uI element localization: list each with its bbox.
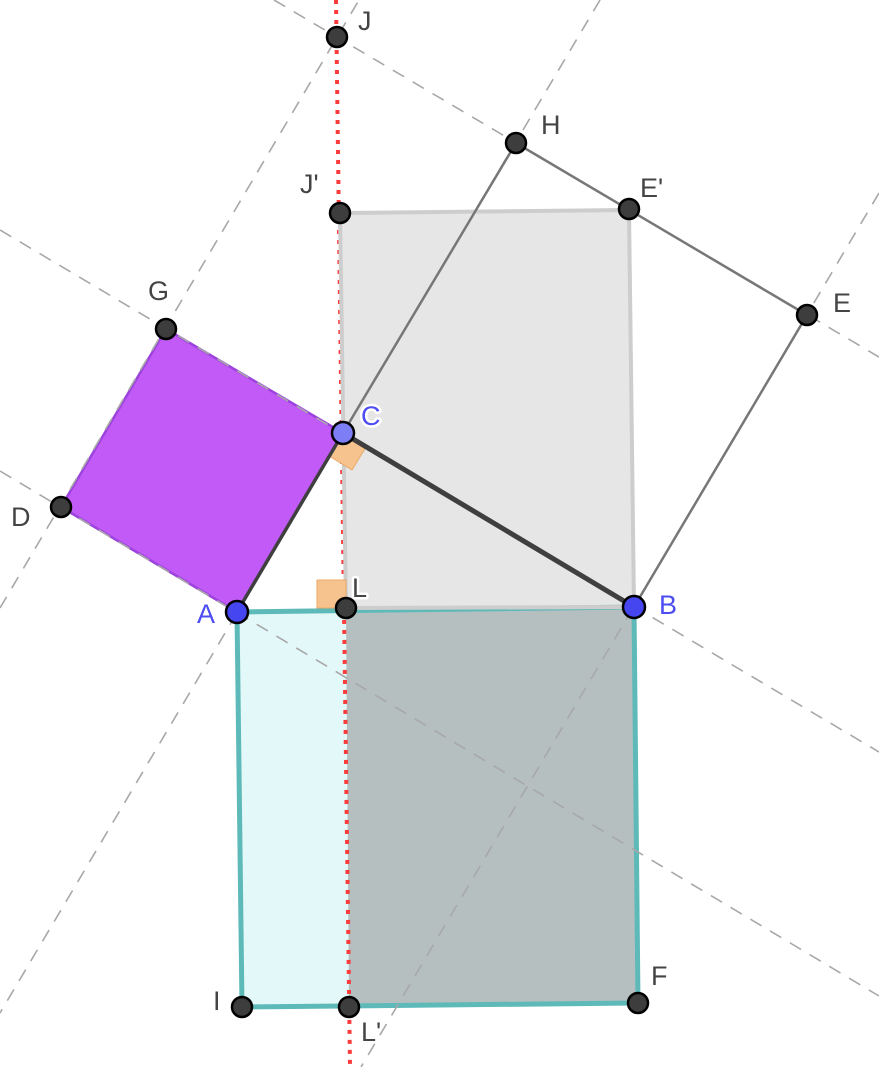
point-B[interactable]: [623, 596, 645, 618]
square-GCAD[interactable]: [61, 329, 343, 612]
label-C: C: [361, 401, 381, 431]
label-H: H: [541, 110, 561, 140]
point-A[interactable]: [226, 601, 248, 623]
label-L-prime: L': [361, 1017, 381, 1047]
diagram-svg: J H E' J' E G C D A L B I L' F: [0, 0, 879, 1067]
label-G: G: [148, 276, 169, 306]
label-E: E: [833, 288, 851, 318]
label-E-prime: E': [640, 173, 663, 203]
label-L: L: [352, 573, 367, 603]
label-D: D: [11, 502, 31, 532]
point-L-prime[interactable]: [339, 997, 359, 1017]
label-I: I: [213, 986, 221, 1016]
point-G[interactable]: [156, 319, 176, 339]
geometry-canvas[interactable]: J H E' J' E G C D A L B I L' F: [0, 0, 879, 1067]
point-J-prime[interactable]: [330, 203, 350, 223]
label-B: B: [659, 590, 677, 620]
label-J-prime: J': [300, 169, 319, 199]
label-J: J: [358, 6, 372, 36]
rectangle-JEBL-gray[interactable]: [340, 210, 634, 608]
point-E[interactable]: [797, 305, 817, 325]
point-J[interactable]: [327, 27, 347, 47]
point-C[interactable]: [332, 422, 354, 444]
point-D[interactable]: [51, 497, 71, 517]
label-F: F: [651, 961, 668, 991]
label-A: A: [197, 599, 215, 629]
point-I[interactable]: [232, 997, 252, 1017]
point-F[interactable]: [628, 993, 648, 1013]
rectangle-LBFL-overlap[interactable]: [346, 607, 638, 1007]
point-H[interactable]: [506, 133, 526, 153]
point-E-prime[interactable]: [619, 199, 639, 219]
